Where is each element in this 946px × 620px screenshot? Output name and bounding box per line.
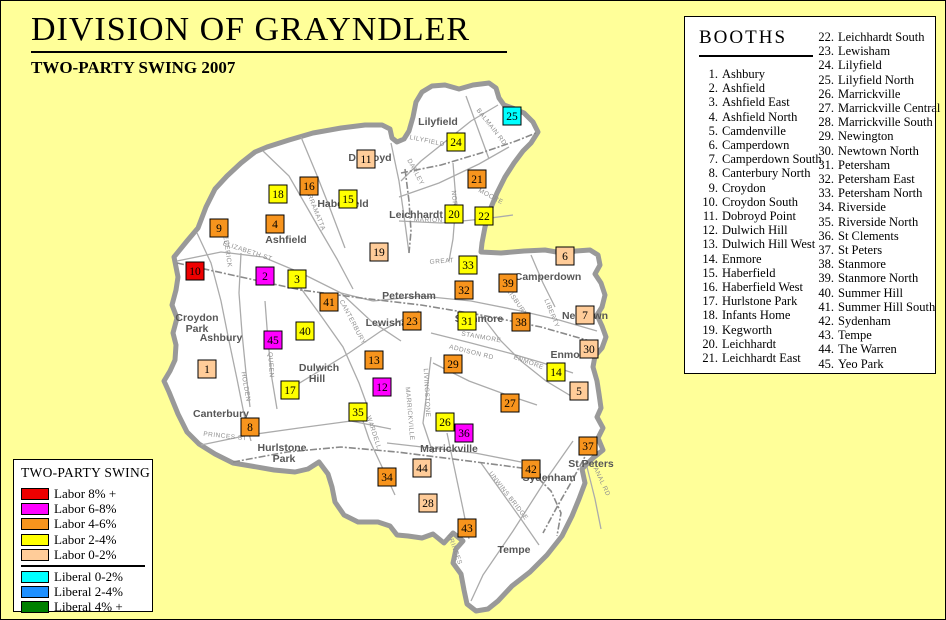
booth-list-item: 28.Marrickville South xyxy=(813,115,940,129)
booth-list-item: 13.Dulwich Hill West xyxy=(697,237,822,251)
booth-marker-number: 22 xyxy=(478,211,490,223)
legend-swatch xyxy=(21,549,49,561)
booth-list-item: 17.Hurlstone Park xyxy=(697,294,822,308)
booth-marker-14: 14 xyxy=(547,363,565,381)
booth-marker-number: 23 xyxy=(406,316,418,328)
booth-marker-42: 42 xyxy=(522,460,540,478)
booths-panel: BOOTHS 1.Ashbury2.Ashfield3.Ashfield Eas… xyxy=(684,16,936,374)
legend-title: TWO-PARTY SWING xyxy=(21,465,152,481)
legend-entry: Liberal 4% + xyxy=(21,600,152,615)
booth-number: 26. xyxy=(813,87,834,101)
legend-label: Labor 4-6% xyxy=(54,516,116,532)
booth-list-item: 21.Leichhardt East xyxy=(697,351,822,365)
booth-name: Summer Hill xyxy=(838,286,903,300)
legend-swatch xyxy=(21,534,49,546)
booths-column-right: 22.Leichhardt South23.Lewisham24.Lilyfie… xyxy=(813,30,940,371)
booth-name: Hurlstone Park xyxy=(722,294,797,308)
booth-name: Tempe xyxy=(838,328,872,342)
legend-label: Labor 2-4% xyxy=(54,532,116,548)
suburb-label: Lilyfield xyxy=(418,116,458,128)
booth-number: 35. xyxy=(813,215,834,229)
booth-marker-number: 6 xyxy=(562,251,568,263)
booth-marker-number: 34 xyxy=(381,472,393,484)
booth-marker-number: 16 xyxy=(303,181,315,193)
booth-name: Marrickville South xyxy=(838,115,933,129)
booth-list-item: 35.Riverside North xyxy=(813,215,940,229)
booth-marker-19: 19 xyxy=(370,243,388,261)
booth-name: Newington xyxy=(838,129,894,143)
booth-marker-number: 17 xyxy=(284,385,296,397)
booth-marker-2: 2 xyxy=(256,267,274,285)
booth-marker-3: 3 xyxy=(288,270,306,288)
booths-column-left: 1.Ashbury2.Ashfield3.Ashfield East4.Ashf… xyxy=(697,67,822,365)
booth-list-item: 33.Petersham North xyxy=(813,186,940,200)
legend-entry: Labor 6-8% xyxy=(21,501,152,516)
booth-name: Newtown North xyxy=(838,144,919,158)
legend-swatch xyxy=(21,518,49,530)
booth-number: 11. xyxy=(697,209,718,223)
booth-marker-number: 20 xyxy=(448,209,460,221)
booth-number: 37. xyxy=(813,243,834,257)
booth-list-item: 40.Summer Hill xyxy=(813,286,940,300)
booth-number: 45. xyxy=(813,357,834,371)
suburb-label: Tempe xyxy=(497,544,530,556)
booth-number: 38. xyxy=(813,257,834,271)
suburb-label: St Peters xyxy=(568,458,614,470)
booth-marker-number: 44 xyxy=(416,463,428,475)
booth-list-item: 14.Enmore xyxy=(697,252,822,266)
suburb-label: Hill xyxy=(309,373,325,385)
booth-marker-number: 40 xyxy=(299,326,311,338)
booth-marker-28: 28 xyxy=(419,494,437,512)
booth-number: 27. xyxy=(813,101,834,115)
booth-name: Dobroyd Point xyxy=(722,209,796,223)
booth-number: 39. xyxy=(813,271,834,285)
booth-marker-number: 3 xyxy=(294,274,300,286)
booth-list-item: 23.Lewisham xyxy=(813,44,940,58)
booth-marker-number: 24 xyxy=(450,137,462,149)
booth-marker-41: 41 xyxy=(320,293,338,311)
booth-list-item: 7.Camperdown South xyxy=(697,152,822,166)
booth-marker-number: 26 xyxy=(439,417,451,429)
booth-number: 2. xyxy=(697,81,718,95)
booth-number: 42. xyxy=(813,314,834,328)
booth-marker-16: 16 xyxy=(300,177,318,195)
booth-list-item: 43.Tempe xyxy=(813,328,940,342)
booth-marker-number: 15 xyxy=(342,194,354,206)
booth-marker-39: 39 xyxy=(499,274,517,292)
suburb-label: Ashfield xyxy=(265,234,306,246)
booth-list-item: 24.Lilyfield xyxy=(813,58,940,72)
booth-name: Kegworth xyxy=(722,323,772,337)
booth-name: Dulwich Hill xyxy=(722,223,788,237)
booth-marker-number: 39 xyxy=(502,278,514,290)
legend-label: Liberal 2-4% xyxy=(54,584,123,600)
booth-number: 19. xyxy=(697,323,718,337)
booth-marker-45: 45 xyxy=(264,331,282,349)
booth-number: 21. xyxy=(697,351,718,365)
booth-list-item: 10.Croydon South xyxy=(697,195,822,209)
booth-number: 32. xyxy=(813,172,834,186)
booth-marker-30: 30 xyxy=(580,340,598,358)
booth-marker-number: 10 xyxy=(189,266,201,278)
booth-list-item: 37.St Peters xyxy=(813,243,940,257)
booth-number: 5. xyxy=(697,124,718,138)
booth-name: Enmore xyxy=(722,252,762,266)
booth-list-item: 36.St Clements xyxy=(813,229,940,243)
booth-name: Camperdown South xyxy=(722,152,822,166)
booth-marker-21: 21 xyxy=(468,170,486,188)
booth-marker-33: 33 xyxy=(459,256,477,274)
booth-name: The Warren xyxy=(838,342,897,356)
booth-marker-number: 35 xyxy=(352,407,364,419)
suburb-label: Leichhardt xyxy=(389,209,443,221)
booth-number: 40. xyxy=(813,286,834,300)
booth-list-item: 15.Haberfield xyxy=(697,266,822,280)
booth-name: Stanmore North xyxy=(838,271,918,285)
booth-marker-number: 32 xyxy=(458,285,470,297)
booth-number: 23. xyxy=(813,44,834,58)
booth-list-item: 27.Marrickville Central xyxy=(813,101,940,115)
booth-name: St Clements xyxy=(838,229,899,243)
suburb-label: Marrickville xyxy=(420,443,478,455)
booth-list-item: 9.Croydon xyxy=(697,181,822,195)
booth-name: Haberfield West xyxy=(722,280,803,294)
legend-entry: Labor 4-6% xyxy=(21,517,152,532)
booth-list-item: 5.Camdenville xyxy=(697,124,822,138)
booth-name: Lilyfield North xyxy=(838,73,914,87)
booth-number: 33. xyxy=(813,186,834,200)
suburb-label: Park xyxy=(273,453,296,465)
booth-list-item: 3.Ashfield East xyxy=(697,95,822,109)
booth-list-item: 26.Marrickville xyxy=(813,87,940,101)
booth-list-item: 39.Stanmore North xyxy=(813,271,940,285)
booth-list-item: 45.Yeo Park xyxy=(813,357,940,371)
booth-name: Ashfield xyxy=(722,81,765,95)
booth-name: Ashbury xyxy=(722,67,765,81)
booth-name: Riverside xyxy=(838,200,886,214)
suburb-label: Petersham xyxy=(382,290,436,302)
booth-marker-40: 40 xyxy=(296,322,314,340)
booth-number: 34. xyxy=(813,200,834,214)
legend-label: Liberal 0-2% xyxy=(54,569,123,585)
booth-name: Petersham North xyxy=(838,186,922,200)
booth-number: 20. xyxy=(697,337,718,351)
booth-list-item: 42.Sydenham xyxy=(813,314,940,328)
legend-entry: Liberal 0-2% xyxy=(21,569,152,584)
legend-swatch xyxy=(21,503,49,515)
suburb-label: Camperdown xyxy=(515,271,582,283)
booth-marker-37: 37 xyxy=(579,437,597,455)
booth-marker-43: 43 xyxy=(458,519,476,537)
booth-number: 25. xyxy=(813,73,834,87)
booth-name: Lilyfield xyxy=(838,58,882,72)
booth-marker-27: 27 xyxy=(501,394,519,412)
booth-number: 29. xyxy=(813,129,834,143)
legend-panel: TWO-PARTY SWING Labor 8% +Labor 6-8%Labo… xyxy=(13,459,153,612)
booth-marker-17: 17 xyxy=(281,381,299,399)
booth-marker-number: 19 xyxy=(373,247,385,259)
booth-marker-number: 4 xyxy=(272,219,278,231)
booth-marker-number: 42 xyxy=(525,464,537,476)
booth-number: 30. xyxy=(813,144,834,158)
header: DIVISION OF GRAYNDLER TWO-PARTY SWING 20… xyxy=(31,11,507,78)
booth-number: 16. xyxy=(697,280,718,294)
booth-name: Croydon xyxy=(722,181,766,195)
booth-marker-number: 5 xyxy=(576,386,582,398)
booth-list-item: 29.Newington xyxy=(813,129,940,143)
booth-name: Stanmore xyxy=(838,257,886,271)
booth-number: 28. xyxy=(813,115,834,129)
legend-entry: Labor 8% + xyxy=(21,486,152,501)
booth-number: 44. xyxy=(813,342,834,356)
booth-number: 24. xyxy=(813,58,834,72)
booth-list-item: 44.The Warren xyxy=(813,342,940,356)
booth-name: Camperdown xyxy=(722,138,789,152)
booth-number: 17. xyxy=(697,294,718,308)
booth-list-item: 30.Newtown North xyxy=(813,144,940,158)
booth-marker-18: 18 xyxy=(269,185,287,203)
booth-name: Leichhardt xyxy=(722,337,776,351)
booth-name: Marrickville xyxy=(838,87,900,101)
booth-marker-12: 12 xyxy=(373,378,391,396)
booth-marker-number: 9 xyxy=(216,223,222,235)
booth-name: Croydon South xyxy=(722,195,798,209)
booth-name: Sydenham xyxy=(838,314,891,328)
booth-marker-number: 2 xyxy=(262,271,268,283)
booth-name: Marrickville Central xyxy=(838,101,940,115)
booth-marker-24: 24 xyxy=(447,133,465,151)
booth-marker-number: 33 xyxy=(462,260,474,272)
booth-number: 14. xyxy=(697,252,718,266)
booth-list-item: 12.Dulwich Hill xyxy=(697,223,822,237)
booth-marker-number: 30 xyxy=(583,344,595,356)
booth-number: 3. xyxy=(697,95,718,109)
booth-number: 18. xyxy=(697,308,718,322)
booth-name: St Peters xyxy=(838,243,882,257)
booth-list-item: 25.Lilyfield North xyxy=(813,73,940,87)
booth-name: Leichhardt South xyxy=(838,30,924,44)
booth-marker-number: 21 xyxy=(471,174,483,186)
suburb-label: Ashbury xyxy=(200,332,243,344)
legend-label: Liberal 4% + xyxy=(54,599,123,615)
legend-swatch xyxy=(21,488,49,500)
booth-marker-6: 6 xyxy=(556,247,574,265)
booth-marker-number: 27 xyxy=(504,398,516,410)
booth-marker-number: 13 xyxy=(368,355,380,367)
booth-list-item: 6.Camperdown xyxy=(697,138,822,152)
booth-marker-number: 31 xyxy=(461,316,473,328)
booth-marker-20: 20 xyxy=(445,205,463,223)
booth-marker-number: 8 xyxy=(247,422,253,434)
booth-marker-29: 29 xyxy=(444,355,462,373)
booth-name: Petersham East xyxy=(838,172,915,186)
booth-name: Ashfield North xyxy=(722,110,797,124)
page-title: DIVISION OF GRAYNDLER xyxy=(31,11,507,53)
booth-number: 1. xyxy=(697,67,718,81)
booth-marker-34: 34 xyxy=(378,468,396,486)
booth-marker-number: 45 xyxy=(267,335,279,347)
booth-marker-31: 31 xyxy=(458,312,476,330)
page-subtitle: TWO-PARTY SWING 2007 xyxy=(31,58,507,78)
booth-number: 6. xyxy=(697,138,718,152)
booth-marker-13: 13 xyxy=(365,351,383,369)
booth-name: Dulwich Hill West xyxy=(722,237,815,251)
booth-marker-5: 5 xyxy=(570,382,588,400)
booth-marker-number: 38 xyxy=(515,317,527,329)
booth-marker-number: 7 xyxy=(582,310,588,322)
booth-marker-15: 15 xyxy=(339,190,357,208)
booth-list-item: 16.Haberfield West xyxy=(697,280,822,294)
booth-list-item: 32.Petersham East xyxy=(813,172,940,186)
booth-number: 9. xyxy=(697,181,718,195)
booth-number: 7. xyxy=(697,152,718,166)
legend-swatch xyxy=(21,571,49,583)
booth-list-item: 22.Leichhardt South xyxy=(813,30,940,44)
booth-marker-number: 1 xyxy=(204,364,210,376)
booth-marker-25: 25 xyxy=(503,107,521,125)
legend-entry: Labor 2-4% xyxy=(21,532,152,547)
booth-marker-44: 44 xyxy=(413,459,431,477)
booth-marker-number: 43 xyxy=(461,523,473,535)
booth-number: 22. xyxy=(813,30,834,44)
booth-marker-number: 28 xyxy=(422,498,434,510)
booth-marker-number: 41 xyxy=(323,297,335,309)
booth-list-item: 31.Petersham xyxy=(813,158,940,172)
booth-name: Lewisham xyxy=(838,44,890,58)
booth-name: Canterbury North xyxy=(722,166,811,180)
booth-name: Leichhardt East xyxy=(722,351,801,365)
booth-list-item: 8.Canterbury North xyxy=(697,166,822,180)
booth-list-item: 18.Infants Home xyxy=(697,308,822,322)
booth-list-item: 11.Dobroyd Point xyxy=(697,209,822,223)
booth-list-item: 19.Kegworth xyxy=(697,323,822,337)
booth-marker-number: 37 xyxy=(582,441,594,453)
booth-number: 10. xyxy=(697,195,718,209)
booth-marker-22: 22 xyxy=(475,207,493,225)
booth-list-item: 1.Ashbury xyxy=(697,67,822,81)
legend-divider xyxy=(21,565,145,567)
booth-marker-number: 36 xyxy=(458,428,470,440)
booth-marker-number: 25 xyxy=(506,111,518,123)
booth-marker-1: 1 xyxy=(198,360,216,378)
booth-marker-10: 10 xyxy=(186,262,204,280)
booth-number: 41. xyxy=(813,300,834,314)
legend-swatch xyxy=(21,586,49,598)
legend-swatch xyxy=(21,601,49,613)
booth-marker-32: 32 xyxy=(455,281,473,299)
booth-marker-36: 36 xyxy=(455,424,473,442)
booth-number: 31. xyxy=(813,158,834,172)
booth-marker-number: 29 xyxy=(447,359,459,371)
booth-marker-9: 9 xyxy=(210,219,228,237)
booth-list-item: 41.Summer Hill South xyxy=(813,300,940,314)
legend-label: Labor 0-2% xyxy=(54,547,116,563)
booth-number: 13. xyxy=(697,237,718,251)
booth-marker-38: 38 xyxy=(512,313,530,331)
booth-name: Camdenville xyxy=(722,124,786,138)
booths-title: BOOTHS xyxy=(699,27,813,57)
booth-name: Riverside North xyxy=(838,215,918,229)
booth-marker-number: 12 xyxy=(376,382,388,394)
booth-list-item: 38.Stanmore xyxy=(813,257,940,271)
booth-marker-11: 11 xyxy=(357,150,375,168)
legend-entries: Labor 8% +Labor 6-8%Labor 4-6%Labor 2-4%… xyxy=(21,486,152,615)
booth-list-item: 4.Ashfield North xyxy=(697,110,822,124)
booth-marker-7: 7 xyxy=(576,306,594,324)
legend-entry: Labor 0-2% xyxy=(21,548,152,563)
booth-marker-26: 26 xyxy=(436,413,454,431)
booth-marker-number: 18 xyxy=(272,189,284,201)
booth-number: 8. xyxy=(697,166,718,180)
legend-entry: Liberal 2-4% xyxy=(21,584,152,599)
booth-marker-23: 23 xyxy=(403,312,421,330)
booth-marker-4: 4 xyxy=(266,215,284,233)
booth-number: 12. xyxy=(697,223,718,237)
booth-marker-number: 14 xyxy=(550,367,562,379)
booth-name: Yeo Park xyxy=(838,357,884,371)
booth-number: 4. xyxy=(697,110,718,124)
booth-name: Haberfield xyxy=(722,266,775,280)
booth-marker-8: 8 xyxy=(241,418,259,436)
booth-list-item: 20.Leichhardt xyxy=(697,337,822,351)
booth-name: Petersham xyxy=(838,158,890,172)
booth-number: 36. xyxy=(813,229,834,243)
legend-label: Labor 6-8% xyxy=(54,501,116,517)
booth-name: Summer Hill South xyxy=(838,300,935,314)
legend-label: Labor 8% + xyxy=(54,486,116,502)
booth-name: Ashfield East xyxy=(722,95,790,109)
booth-marker-number: 11 xyxy=(360,154,371,166)
booth-name: Infants Home xyxy=(722,308,790,322)
booth-number: 43. xyxy=(813,328,834,342)
booth-list-item: 2.Ashfield xyxy=(697,81,822,95)
booth-marker-35: 35 xyxy=(349,403,367,421)
map-poster: BALMAIN RDLILYFIELD RDDARLEYMOORENORTONM… xyxy=(0,0,946,620)
booth-number: 15. xyxy=(697,266,718,280)
booth-list-item: 34.Riverside xyxy=(813,200,940,214)
